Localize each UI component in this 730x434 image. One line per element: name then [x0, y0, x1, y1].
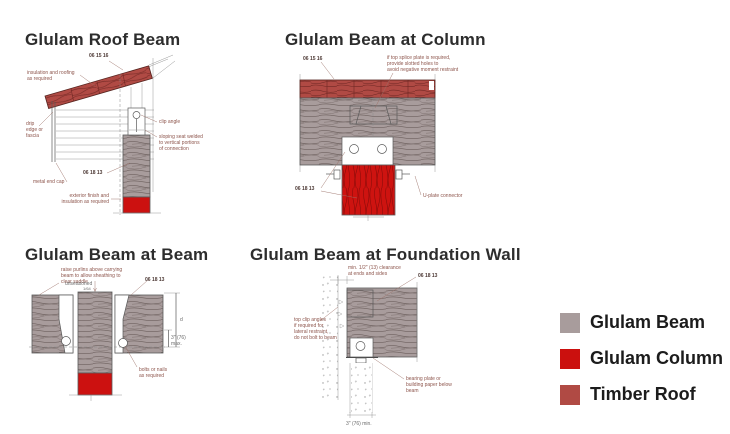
bolt-circle	[119, 339, 128, 348]
bolt-circle	[62, 337, 71, 346]
legend-label-glulam-column: Glulam Column	[590, 348, 723, 369]
label-unseasoned-dim: 1/64	[83, 287, 91, 292]
ref-code-beam: 06 18 13	[418, 273, 437, 279]
label-bearing-plate: bearing plate or building paper below be…	[406, 376, 452, 394]
diagram-title: Glulam Beam at Column	[285, 30, 490, 50]
label-clip-angles: top clip angles if required for lateral …	[294, 317, 337, 341]
carrying-beam	[78, 292, 112, 373]
bolt-nut	[396, 170, 402, 179]
diagram-glulam-beam-at-column: Glulam Beam at Column	[285, 30, 490, 245]
label-drip-edge: drip edge or fascia	[26, 121, 43, 139]
label-sloping-seat: sloping seat welded to vertical portions…	[159, 134, 203, 152]
label-insulation: insulation and roofing as required	[27, 70, 75, 82]
legend-label-timber-roof: Timber Roof	[590, 384, 696, 405]
legend-item-glulam-column: Glulam Column	[560, 348, 723, 369]
ref-code-beam: 06 18 13	[145, 277, 164, 283]
ref-code-roof: 06 15 16	[303, 56, 322, 62]
diagram-title: Glulam Roof Beam	[25, 30, 275, 50]
label-metal-end-cap: metal end cap	[33, 179, 64, 185]
ref-code-beam: 06 18 13	[83, 170, 102, 176]
glulam-column-base	[78, 373, 112, 395]
label-splice-note: if top splice plate is required, provide…	[387, 55, 458, 73]
bearing-seat	[350, 338, 373, 357]
legend-swatch-glulam-beam	[560, 313, 580, 333]
label-u-plate: U-plate connector	[423, 193, 462, 199]
anchor-nut	[356, 358, 366, 363]
label-dim-max: 3" (76) max.	[171, 335, 186, 347]
bolt-nut	[334, 170, 340, 179]
legend-swatch-timber-roof	[560, 385, 580, 405]
legend-swatch-glulam-column	[560, 349, 580, 369]
diagram-glulam-beam-at-foundation-wall: Glulam Beam at Foundation Wall	[250, 245, 490, 434]
glulam-column-shape	[342, 165, 395, 215]
ref-code-beam: 06 18 13	[295, 186, 314, 192]
diagram-glulam-beam-at-beam: Glulam Beam at Beam raise purlins abo	[25, 245, 250, 430]
clip-angle-marks	[338, 300, 344, 328]
label-bolts: bolts or nails as required	[139, 367, 167, 379]
label-dim-depth: d	[180, 317, 183, 323]
label-clip-angle: clip angle	[159, 119, 180, 125]
glulam-column-base	[123, 197, 150, 213]
label-exterior-finish: exterior finish and insulation as requir…	[57, 193, 109, 205]
diagram-title: Glulam Beam at Beam	[25, 245, 250, 265]
foundation-wall-drawing	[250, 267, 490, 434]
beam-at-column-drawing	[285, 52, 490, 245]
beam-at-beam-drawing	[25, 267, 250, 430]
timber-roof-band	[300, 80, 435, 98]
legend-label-glulam-beam: Glulam Beam	[590, 312, 705, 333]
legend-item-timber-roof: Timber Roof	[560, 384, 723, 405]
label-dim-min: 3" (76) min.	[346, 421, 372, 427]
diagram-glulam-roof-beam: Glulam Roof Beam	[25, 30, 275, 230]
glulam-column-shape	[123, 135, 150, 197]
legend: Glulam Beam Glulam Column Timber Roof	[560, 312, 723, 420]
page: Glulam Roof Beam	[0, 0, 730, 434]
legend-item-glulam-beam: Glulam Beam	[560, 312, 723, 333]
diagram-title: Glulam Beam at Foundation Wall	[250, 245, 490, 265]
label-clearance: min. 1/2" (13) clearance at ends and sid…	[348, 265, 401, 277]
ref-code-roof: 06 15 16	[89, 53, 108, 59]
